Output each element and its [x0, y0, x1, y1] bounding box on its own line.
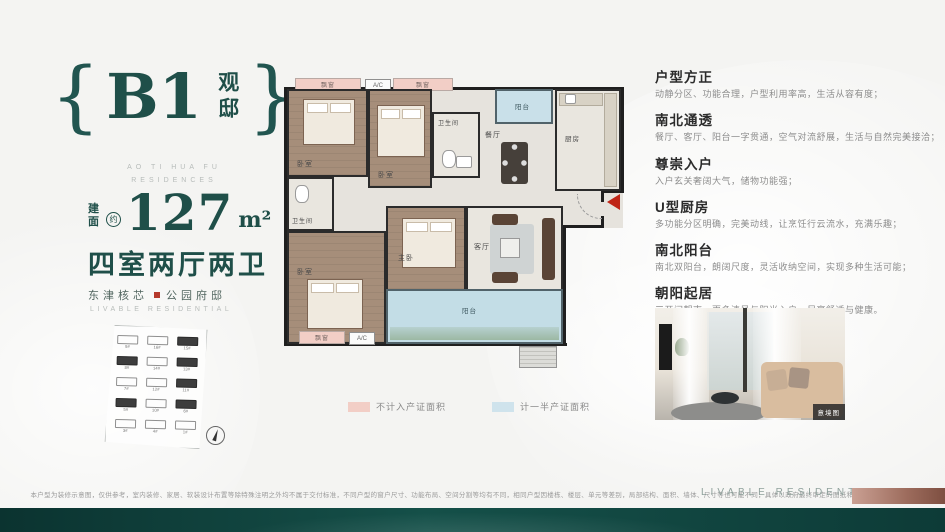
brochure-page: { B1 观邸 } AO TI HUA FU RESIDENCES 建面 约 1…	[0, 0, 945, 532]
building-footprint-icon	[147, 336, 168, 346]
building-marker: 16#	[142, 333, 173, 355]
toilet-icon	[295, 185, 309, 203]
room-label: 卫生间	[292, 216, 313, 225]
building-marker: 9#	[112, 332, 143, 354]
feature-desc: 南北双阳台，朗阔尺度，灵活收纳空间，实现多种生活可能；	[655, 262, 943, 273]
building-marker: 12#	[141, 375, 172, 397]
legend-label: 不计入产证面积	[376, 400, 446, 413]
building-footprint-icon	[146, 378, 167, 388]
building-label: 9#	[125, 345, 130, 349]
ac-platform-bottom: A/C	[349, 332, 375, 345]
coffee-table-icon	[500, 238, 520, 258]
unit-code: B1	[106, 69, 202, 125]
tagline-sub: LIVABLE RESIDENTIAL	[90, 306, 232, 313]
area-prefix: 建面	[88, 203, 101, 228]
legend-label: 计一半产证面积	[520, 400, 590, 413]
stove-icon	[565, 94, 576, 104]
photo-window-frame	[743, 308, 747, 392]
area-unit: m²	[238, 207, 271, 233]
interior-photo: 意境图	[655, 308, 845, 420]
bed-icon	[303, 99, 355, 145]
building-footprint-icon	[115, 398, 136, 408]
footer-wave-bar	[0, 508, 945, 532]
building-marker: 1#	[170, 417, 201, 439]
legend-item: 计一半产证面积	[492, 400, 590, 413]
wall	[563, 225, 566, 346]
building-marker: 10#	[140, 396, 171, 418]
toilet-icon	[442, 150, 456, 168]
building-marker: 15#	[172, 333, 203, 355]
photo-coffee-table	[711, 392, 739, 404]
building-marker: 4#	[140, 417, 171, 439]
building-label: 12#	[152, 388, 159, 392]
room-label: 主卧	[398, 253, 414, 263]
bronze-accent-bar	[852, 488, 945, 504]
building-marker: 7#	[111, 374, 142, 396]
room-living: 客厅	[466, 206, 563, 291]
bed-icon	[377, 105, 425, 157]
building-marker: 6#	[170, 396, 201, 418]
building-label: 7#	[124, 387, 129, 391]
armchair-icon	[492, 272, 518, 283]
kitchen-counter	[604, 93, 617, 187]
building-footprint-icon	[175, 379, 196, 389]
building-footprint-icon	[174, 420, 195, 430]
building-label: 10#	[152, 409, 159, 413]
unit-name-vertical: 观邸	[212, 71, 242, 123]
photo-tag: 意境图	[813, 404, 846, 420]
dining-table-icon	[501, 142, 528, 184]
feature-title: 户型方正	[655, 66, 943, 86]
photo-rug	[671, 402, 767, 420]
room-balcony-top: 阳台	[495, 89, 553, 124]
room-label: 卧室	[297, 267, 313, 277]
feature-item: U型厨房 多功能分区明确，完美动线，让烹饪行云流水，充满乐趣；	[655, 196, 943, 230]
building-label: 8#	[124, 366, 129, 370]
room-bedroom-top-middle: 卧室	[368, 89, 432, 188]
building-marker: 5#	[110, 395, 141, 417]
feature-title: 尊崇入户	[655, 153, 943, 173]
room-configuration: 四室两厅两卫	[88, 243, 268, 282]
room-kitchen: 厨房	[555, 89, 621, 191]
building-label: 15#	[183, 347, 190, 351]
feature-item: 户型方正 动静分区、功能合理，户型利用率高，生活从容有度；	[655, 66, 943, 100]
bed-icon	[307, 279, 363, 329]
photo-cushion	[788, 367, 810, 389]
room-label: 餐厅	[485, 130, 501, 140]
armchair-icon	[492, 214, 518, 225]
building-label: 11#	[182, 389, 189, 393]
building-label: 1#	[182, 431, 187, 435]
building-footprint-icon	[146, 357, 167, 367]
feature-desc: 入户玄关奢阔大气，储物功能强；	[655, 176, 943, 187]
feature-item: 南北阳台 南北双阳台，朗阔尺度，灵活收纳空间，实现多种生活可能；	[655, 239, 943, 273]
plan-legend: 不计入产证面积 计一半产证面积	[348, 400, 590, 413]
feature-item: 南北通透 餐厅、客厅、阳台一字贯通，空气对流舒展，生活与自然完美接洽；	[655, 109, 943, 143]
legend-swatch-icon	[492, 402, 514, 412]
tagline: 东津核芯 公园府邸	[88, 287, 226, 303]
building-footprint-icon	[114, 419, 135, 429]
building-footprint-icon	[116, 356, 137, 366]
red-square-divider-icon	[154, 292, 160, 298]
building-marker: 11#	[171, 375, 202, 397]
building-footprint-icon	[117, 335, 138, 345]
wall	[621, 87, 624, 193]
building-label: 4#	[152, 430, 157, 434]
feature-title: U型厨房	[655, 196, 943, 216]
brace-left-glyph: {	[51, 64, 101, 130]
room-label: 卧室	[378, 170, 394, 180]
feature-title: 朝阳起居	[655, 282, 943, 302]
building-footprint-icon	[177, 337, 198, 347]
entry-arrow-icon	[607, 194, 620, 210]
building-marker: 14#	[141, 354, 172, 376]
room-balcony-bottom: 阳台	[386, 289, 563, 344]
plants-strip	[390, 327, 559, 340]
building-footprint-icon	[144, 420, 165, 430]
legend-item: 不计入产证面积	[348, 400, 446, 413]
room-label: 厨房	[565, 133, 580, 143]
legend-swatch-icon	[348, 402, 370, 412]
ac-ladder-platform	[519, 346, 557, 368]
room-label: 阳台	[462, 305, 477, 315]
feature-title: 南北通透	[655, 109, 943, 129]
site-plan-buildings: 9# 16# 15# 8# 14	[106, 326, 207, 446]
room-bedroom-top-left: 卧室	[287, 89, 368, 177]
area-block: 建面 约 127 m²	[88, 192, 271, 235]
building-label: 3#	[122, 429, 127, 433]
sofa-icon	[542, 218, 555, 280]
feature-list: 户型方正 动静分区、功能合理，户型利用率高，生活从容有度； 南北通透 餐厅、客厅…	[655, 66, 943, 326]
room-master-bedroom: 主卧	[386, 206, 466, 291]
room-bathroom-left: 卫生间	[287, 177, 334, 231]
tagline-right: 公园府邸	[166, 287, 226, 303]
room-label: 卧室	[297, 159, 313, 169]
building-footprint-icon	[145, 399, 166, 409]
feature-desc: 餐厅、客厅、阳台一字贯通，空气对流舒展，生活与自然完美接洽；	[655, 132, 943, 143]
building-footprint-icon	[176, 358, 197, 368]
brand-line1: AO TI HUA FU	[90, 162, 258, 175]
room-bathroom-middle: 卫生间	[432, 112, 480, 178]
room-label: 阳台	[515, 101, 530, 111]
building-marker: 3#	[110, 416, 141, 438]
bay-window-bottom: 飘窗	[299, 331, 345, 344]
feature-desc: 动静分区、功能合理，户型利用率高，生活从容有度；	[655, 89, 943, 100]
building-label: 6#	[183, 410, 188, 414]
area-value: 127	[126, 192, 233, 235]
approx-circle: 约	[106, 212, 121, 227]
wall	[563, 225, 604, 228]
unit-logo: { B1 观邸 }	[90, 64, 258, 130]
building-label: 16#	[153, 346, 160, 350]
photo-cushion	[766, 369, 789, 392]
photo-tv	[659, 324, 672, 370]
building-marker: 8#	[111, 353, 142, 375]
compass-icon	[206, 426, 225, 445]
site-plan-map: 9# 16# 15# 8# 14	[104, 325, 207, 450]
building-marker: 13#	[171, 354, 202, 376]
building-label: 14#	[153, 367, 160, 371]
room-label: 客厅	[474, 242, 490, 252]
sink-icon	[456, 156, 472, 168]
room-label: 卫生间	[438, 118, 459, 127]
building-label: 13#	[183, 368, 190, 372]
floor-plan: 飘窗 A/C 飘窗 卧室 卧室 卫生间 阳台 厨房 餐厅	[283, 76, 635, 376]
room-dining: 餐厅	[481, 126, 551, 200]
building-footprint-icon	[116, 377, 137, 387]
feature-title: 南北阳台	[655, 239, 943, 259]
feature-desc: 多功能分区明确，完美动线，让烹饪行云流水，充满乐趣；	[655, 219, 943, 230]
feature-item: 尊崇入户 入户玄关奢阔大气，储物功能强；	[655, 153, 943, 187]
building-label: 5#	[123, 408, 128, 412]
tagline-left: 东津核芯	[88, 287, 148, 303]
building-footprint-icon	[175, 400, 196, 410]
room-bedroom-bottom-left: 卧室	[287, 231, 386, 344]
